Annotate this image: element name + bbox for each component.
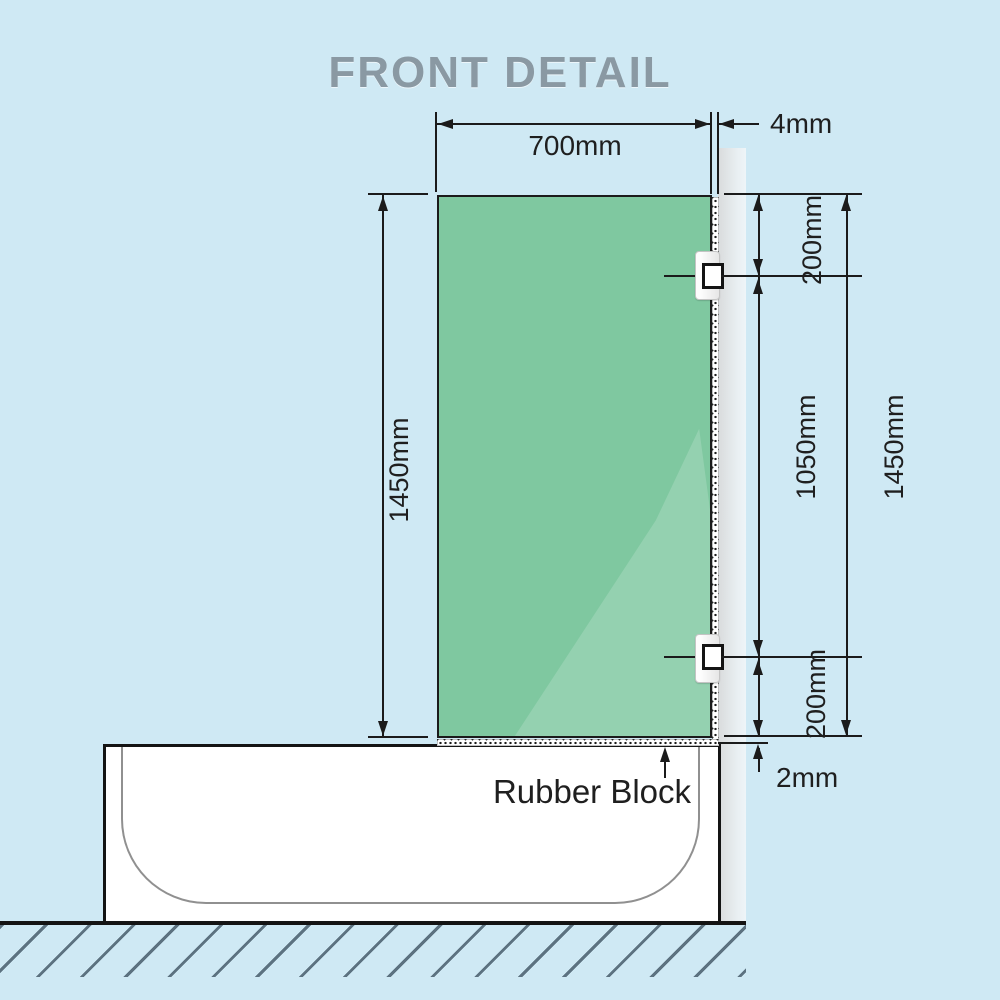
dimension-label-glass-height-left: 1450mm bbox=[384, 380, 414, 560]
extension-line bbox=[368, 736, 428, 738]
dimension-label-top-bracket-offset: 200mm bbox=[797, 150, 827, 330]
dimension-arrow bbox=[753, 660, 763, 675]
dimension-label-glass-width: 700mm bbox=[495, 130, 655, 162]
dimension-arrow bbox=[378, 721, 388, 736]
front-detail-diagram: FRONT DETAIL 700mm 4mm 1450mm 200mm 1050… bbox=[0, 0, 1000, 1000]
extension-line bbox=[721, 275, 862, 277]
dimension-line-700mm bbox=[437, 123, 711, 125]
dimension-label-glass-height-right: 1450mm bbox=[879, 357, 909, 537]
dimension-arrow bbox=[753, 744, 763, 759]
dimension-label-bracket-spacing: 1050mm bbox=[791, 357, 821, 537]
extension-line bbox=[721, 656, 862, 658]
dimension-arrow bbox=[841, 196, 851, 211]
dimension-arrow bbox=[753, 279, 763, 294]
rubber-block-strip bbox=[437, 739, 719, 746]
dimension-line-1450mm-right bbox=[846, 195, 848, 736]
dimension-arrow bbox=[438, 119, 453, 129]
dimension-label-floor-gap: 2mm bbox=[776, 762, 838, 794]
dimension-arrow bbox=[753, 720, 763, 735]
rubber-block-label: Rubber Block bbox=[482, 773, 702, 811]
diagram-title: FRONT DETAIL bbox=[0, 48, 1000, 98]
bathtub-inner-outline bbox=[121, 747, 700, 904]
dimension-label-bottom-bracket-offset: 200mm bbox=[801, 604, 831, 784]
dimension-arrow bbox=[695, 119, 710, 129]
extension-line bbox=[368, 193, 428, 195]
ground-hatch bbox=[0, 925, 746, 977]
dimension-arrow bbox=[719, 119, 734, 129]
dimension-arrow bbox=[841, 720, 851, 735]
rubber-block-arrow bbox=[660, 747, 670, 762]
extension-line bbox=[724, 735, 862, 737]
dimension-arrow bbox=[753, 640, 763, 655]
dimension-arrow bbox=[753, 196, 763, 211]
dimension-arrow bbox=[378, 196, 388, 211]
dimension-label-wall-gap: 4mm bbox=[770, 108, 832, 140]
extension-line bbox=[724, 193, 862, 195]
dimension-arrow bbox=[753, 259, 763, 274]
